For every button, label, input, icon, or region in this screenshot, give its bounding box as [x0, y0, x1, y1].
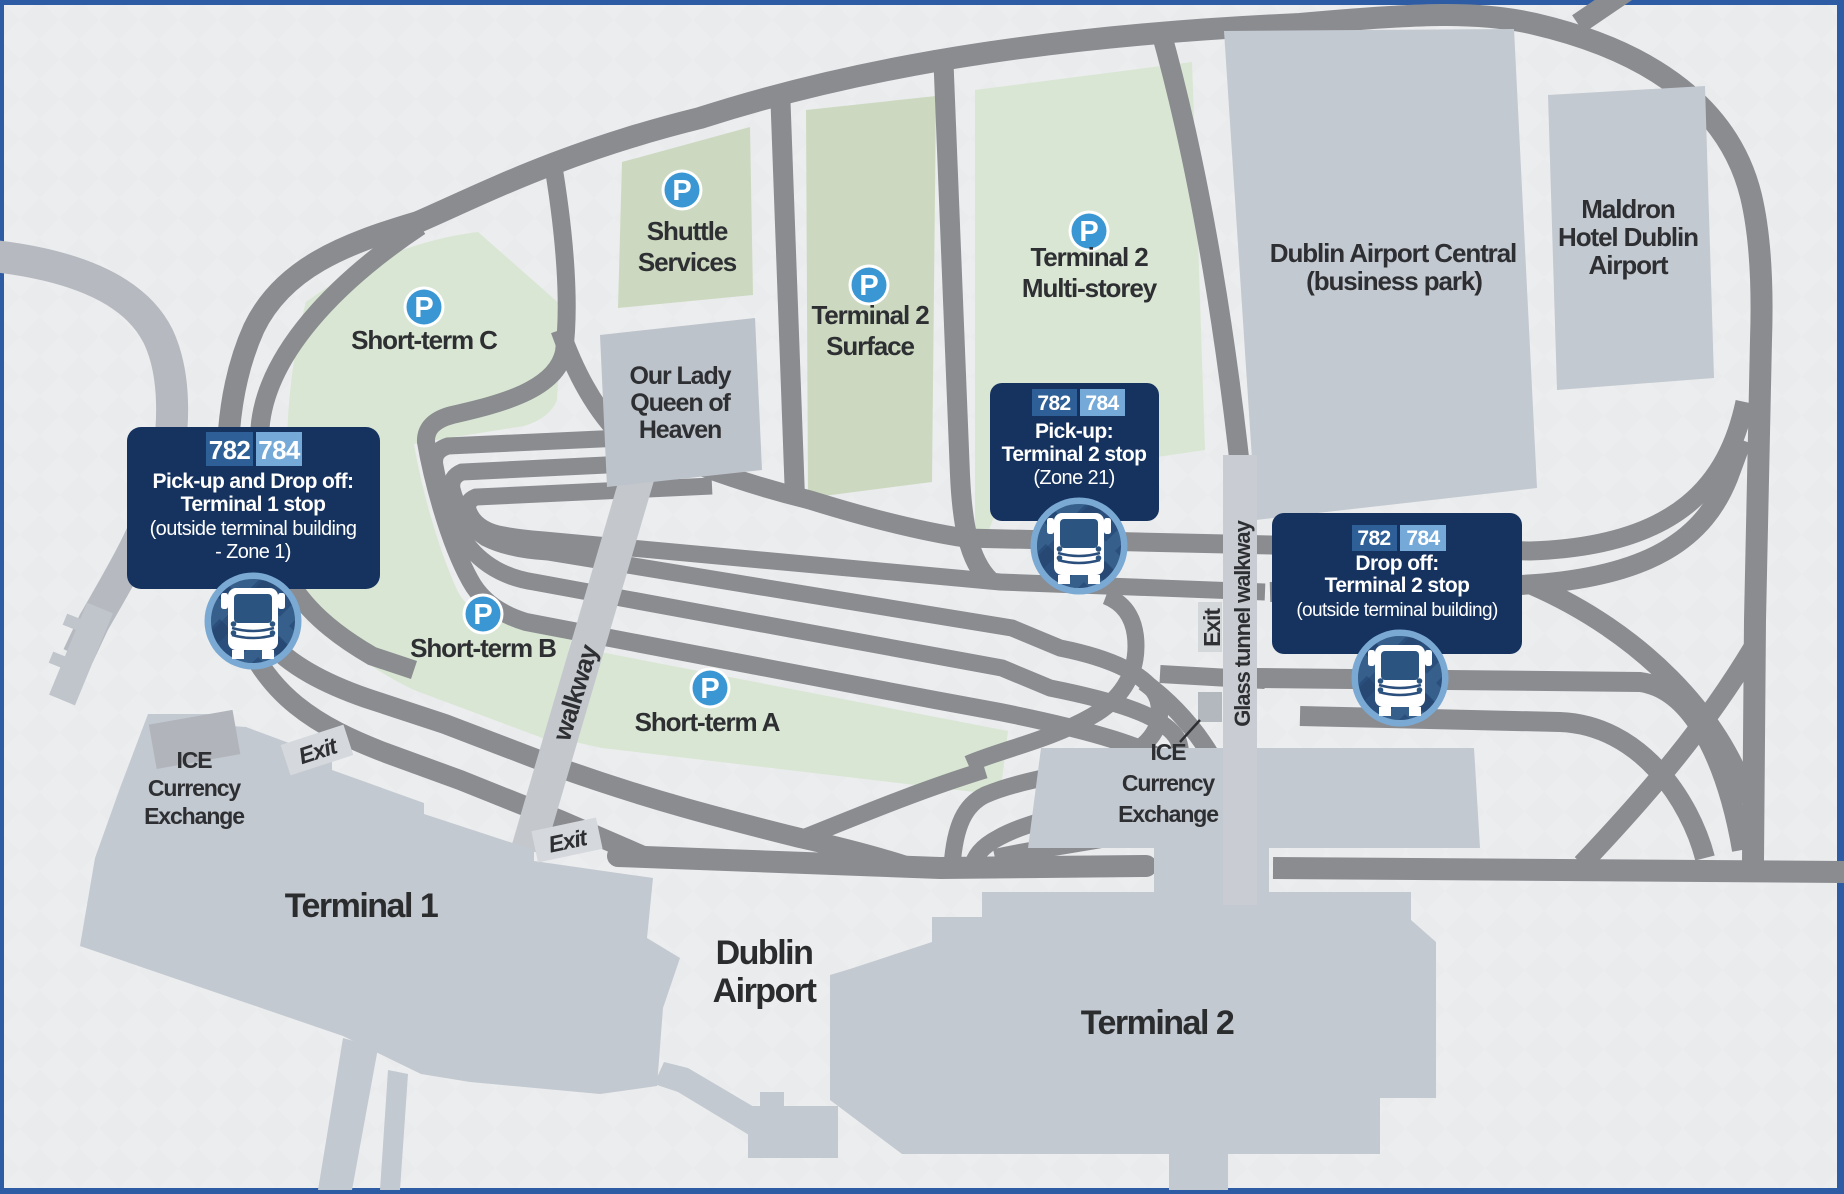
svg-text:Terminal 2 stop: Terminal 2 stop [1002, 443, 1147, 466]
svg-text:782: 782 [1037, 392, 1070, 415]
svg-text:(outside terminal building: (outside terminal building [150, 518, 357, 540]
svg-text:Exchange: Exchange [1118, 801, 1218, 827]
svg-text:Services: Services [638, 247, 737, 277]
svg-text:Short-term B: Short-term B [410, 633, 556, 663]
svg-text:784: 784 [1085, 392, 1119, 415]
svg-text:784: 784 [258, 435, 301, 465]
svg-text:784: 784 [1406, 527, 1440, 550]
svg-text:Terminal 1 stop: Terminal 1 stop [181, 493, 326, 516]
svg-text:Heaven: Heaven [639, 416, 721, 444]
svg-text:Hotel Dublin: Hotel Dublin [1558, 222, 1698, 252]
svg-text:Terminal 2 stop: Terminal 2 stop [1325, 574, 1470, 597]
svg-text:Terminal 1: Terminal 1 [285, 887, 438, 925]
svg-text:Surface: Surface [826, 331, 914, 361]
svg-text:Our Lady: Our Lady [630, 362, 732, 390]
svg-text:Currency: Currency [1122, 770, 1215, 796]
svg-text:Exit: Exit [1199, 608, 1225, 647]
svg-text:782: 782 [209, 435, 251, 465]
svg-text:Queen of: Queen of [630, 389, 731, 417]
svg-text:Airport: Airport [1589, 250, 1669, 280]
svg-text:Shuttle: Shuttle [647, 216, 728, 246]
svg-text:Dublin: Dublin [716, 934, 813, 972]
svg-text:Short-term C: Short-term C [351, 325, 498, 355]
svg-text:(business park): (business park) [1306, 266, 1482, 296]
svg-text:Drop off:: Drop off: [1355, 552, 1438, 575]
svg-text:Terminal 2: Terminal 2 [1030, 242, 1148, 272]
svg-text:Pick-up and Drop off:: Pick-up and Drop off: [153, 470, 354, 493]
svg-text:Terminal 2: Terminal 2 [811, 300, 929, 330]
svg-text:(outside terminal building): (outside terminal building) [1296, 600, 1498, 621]
svg-text:Currency: Currency [148, 775, 241, 801]
svg-text:Airport: Airport [713, 972, 817, 1010]
svg-text:Multi-storey: Multi-storey [1022, 273, 1158, 303]
svg-text:Pick-up:: Pick-up: [1035, 420, 1113, 443]
svg-text:782: 782 [1357, 527, 1390, 550]
svg-text:Glass tunnel walkway: Glass tunnel walkway [1230, 519, 1255, 726]
svg-text:Maldron: Maldron [1581, 194, 1675, 224]
svg-text:Exchange: Exchange [144, 803, 244, 829]
svg-text:(Zone 21): (Zone 21) [1033, 467, 1114, 489]
svg-text:ICE: ICE [1150, 739, 1186, 765]
svg-text:Dublin Airport Central: Dublin Airport Central [1270, 238, 1516, 268]
svg-text:ICE: ICE [176, 747, 212, 773]
svg-text:- Zone 1): - Zone 1) [215, 541, 291, 563]
svg-text:Short-term A: Short-term A [635, 707, 781, 737]
svg-text:Terminal 2: Terminal 2 [1081, 1004, 1234, 1042]
